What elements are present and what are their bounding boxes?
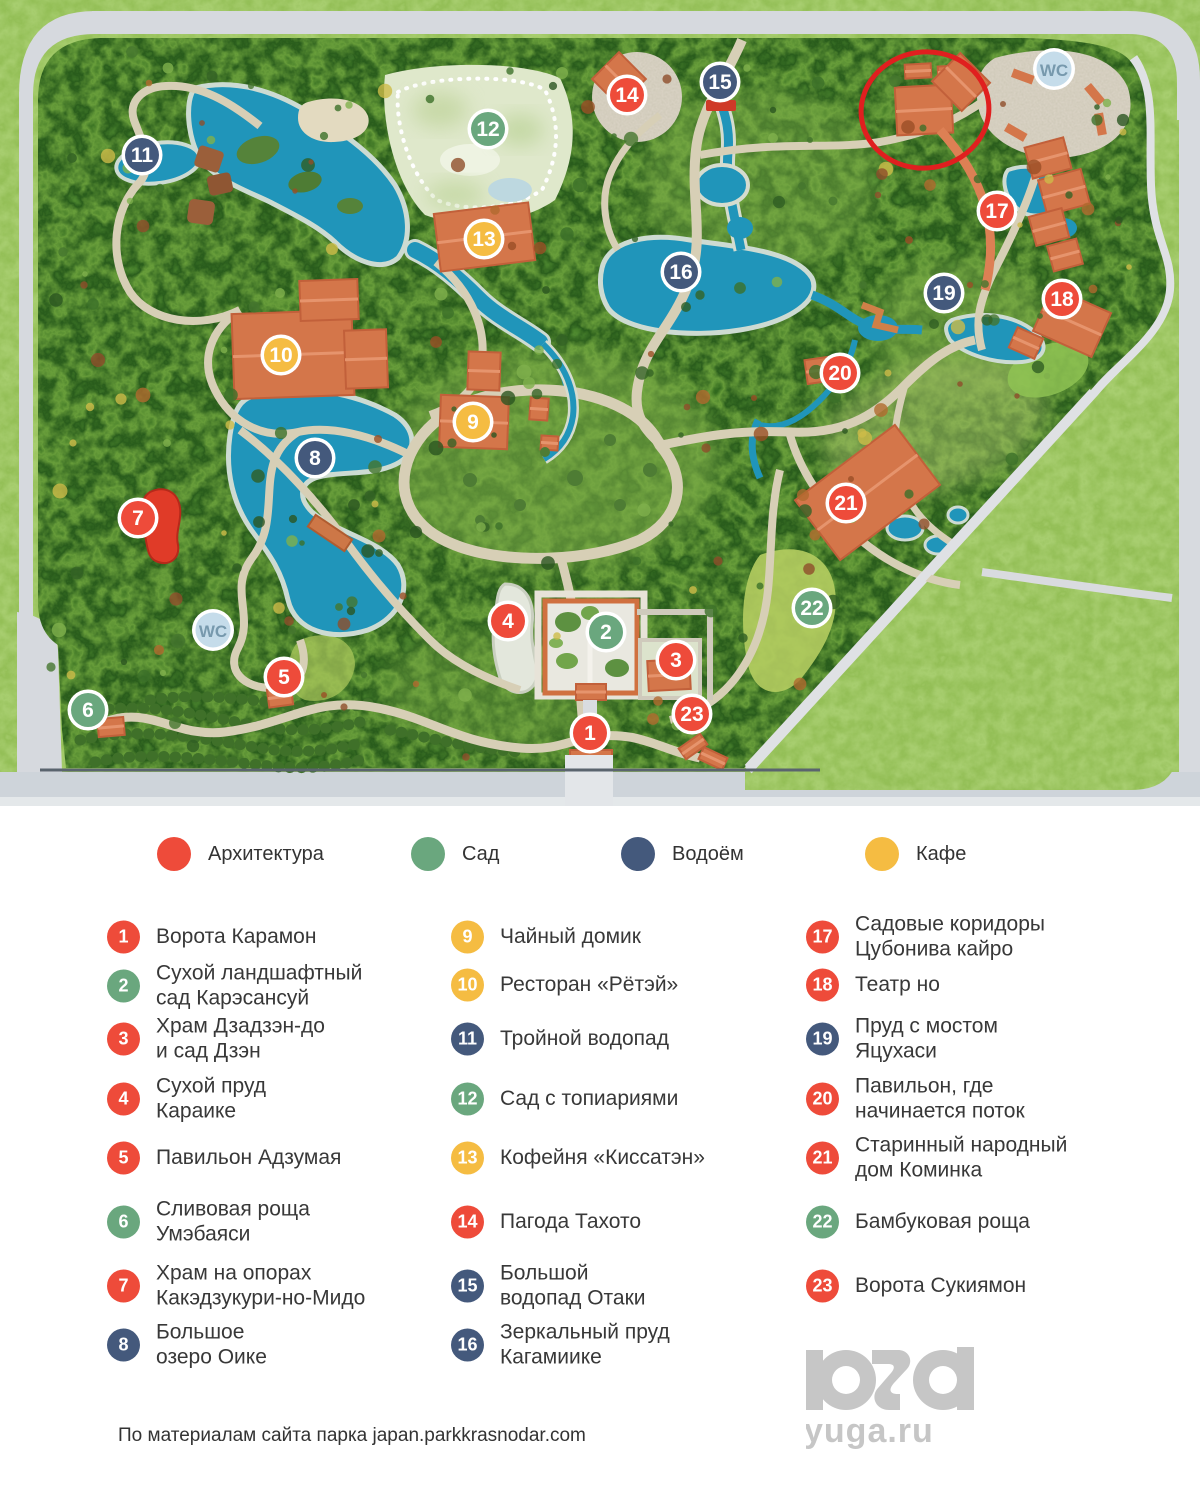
svg-text:yuga.ru: yuga.ru <box>806 1412 934 1450</box>
